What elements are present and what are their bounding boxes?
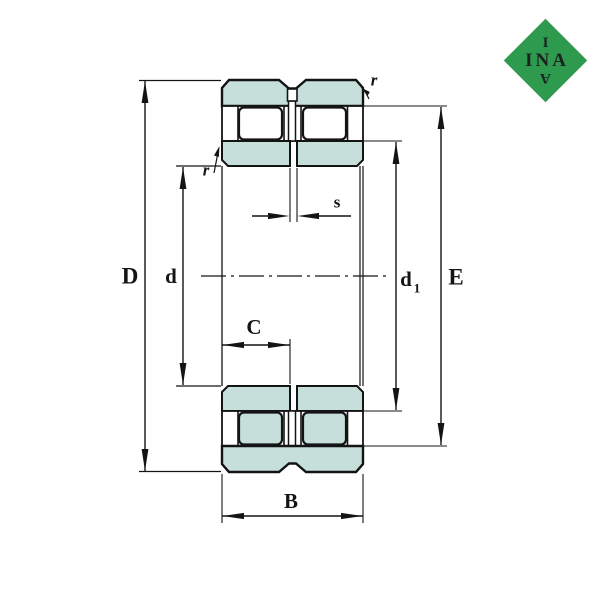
- dimension-label-d1-subscript: 1: [414, 281, 421, 296]
- dimension-label-E: E: [448, 265, 463, 290]
- roller-bottom-left: [239, 413, 282, 445]
- inner-ring-top-right: [297, 141, 363, 166]
- dimension-label-d1: d: [400, 267, 412, 291]
- roller-top-right: [303, 108, 346, 140]
- lubrication-channel-top: [289, 101, 296, 141]
- ina-logo-letter-bottom-inverted: A: [540, 70, 551, 86]
- dimension-label-B: B: [284, 489, 298, 513]
- dimension-label-C: C: [246, 315, 261, 339]
- dimension-label-D: D: [122, 264, 139, 289]
- inner-ring-bottom-right: [297, 386, 363, 411]
- dimension-label-r-outer: r: [371, 71, 378, 90]
- dimension-label-d: d: [165, 264, 177, 288]
- dimension-label-r-inner: r: [203, 161, 210, 180]
- lubrication-hole-top: [288, 89, 298, 101]
- inner-ring-bottom-left: [222, 386, 290, 411]
- roller-top-left: [239, 108, 282, 140]
- bearing-drawing-page: D d s C: [0, 0, 600, 600]
- ina-logo-word: INA: [525, 50, 569, 71]
- ina-logo-letter-top: I: [543, 35, 549, 51]
- bearing-cross-section-drawing: D d s C: [0, 0, 600, 600]
- dimension-label-s: s: [334, 193, 341, 212]
- roller-bottom-right: [303, 413, 346, 445]
- inner-ring-top-left: [222, 141, 290, 166]
